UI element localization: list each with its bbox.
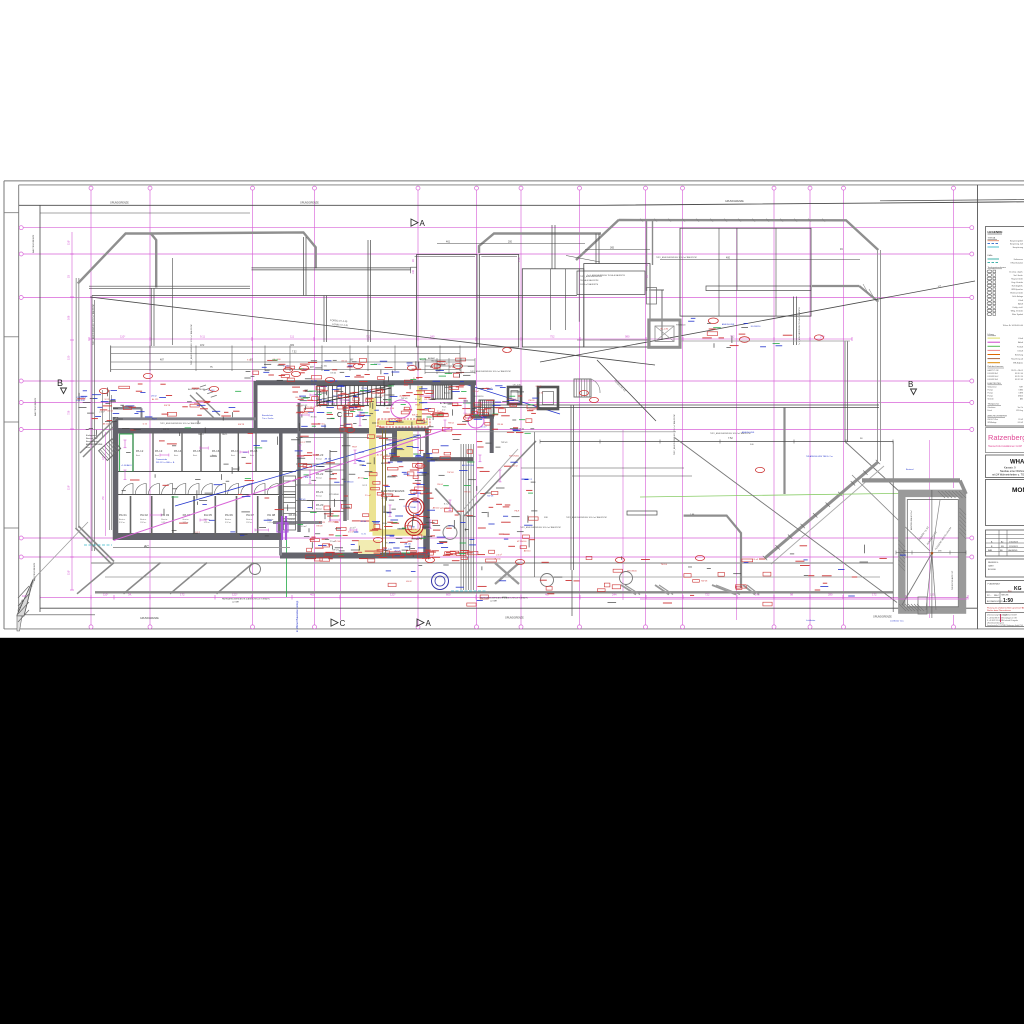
svg-text:Zuluft: Zuluft — [1018, 337, 1023, 340]
svg-text:KW 28: KW 28 — [528, 400, 535, 402]
svg-text:2.5 m²: 2.5 m² — [365, 494, 371, 497]
svg-text:PA 18: PA 18 — [250, 449, 258, 453]
svg-text:Einst.: Einst. — [231, 454, 236, 457]
svg-text:X82: X82 — [290, 345, 295, 347]
svg-text:119°: 119° — [67, 485, 71, 490]
svg-text:BAN: BAN — [988, 549, 993, 552]
svg-text:Einst.: Einst. — [174, 454, 179, 457]
svg-text:Einst.: Einst. — [136, 454, 141, 457]
svg-text:Einst.pl.: Einst.pl. — [316, 458, 323, 461]
svg-text:Grundlagen d. OIB: Grundlagen d. OIB — [1003, 616, 1018, 619]
svg-text:PLANINHALT: PLANINHALT — [988, 582, 1001, 585]
svg-text:Anspeiseg. kalt: Anspeiseg. kalt — [1010, 243, 1023, 246]
svg-text:166: 166 — [67, 315, 71, 320]
svg-text:HT DN100: HT DN100 — [440, 508, 450, 510]
svg-text:GRUNDGRENZE: GRUNDGRENZE — [300, 202, 319, 205]
svg-text:PC…: PC… — [987, 595, 992, 597]
svg-text:B: B — [57, 378, 63, 388]
svg-text:110°: 110° — [120, 335, 125, 339]
svg-text:Pumpe: Pumpe — [988, 390, 993, 392]
svg-text:KW7: KW7 — [1019, 387, 1023, 389]
svg-text:MONTA: MONTA — [1012, 487, 1024, 494]
svg-text:OK -2.80: OK -2.80 — [384, 549, 393, 551]
svg-text:9.11: 9.11 — [200, 335, 206, 339]
svg-text:110°: 110° — [22, 595, 27, 598]
svg-text:3.52 m²: 3.52 m² — [225, 521, 231, 524]
svg-text:ANSCHLUSS: ANSCHLUSS — [742, 431, 755, 434]
svg-text:FAHRBAHNOBERKANTE (DARIOOVELLE: FAHRBAHNOBERKANTE (DARIOOVELLE STRATH) — [480, 597, 528, 600]
svg-text:116°: 116° — [67, 240, 71, 245]
svg-text:KG: KG — [1014, 586, 1022, 592]
svg-text:Kansstr. 9: Kansstr. 9 — [1004, 466, 1016, 470]
svg-text:12/9/2021: 12/9/2021 — [1009, 546, 1019, 548]
svg-text:PA 07: PA 07 — [246, 513, 254, 517]
svg-text:Elektroverteiler: Elektroverteiler — [1010, 292, 1023, 295]
svg-text:N. behördl. Freigabe: N. behördl. Freigabe — [1003, 619, 1018, 622]
svg-text:103.4 m² BAUFNTM: 103.4 m² BAUFNTM — [580, 283, 598, 286]
svg-text:ZL 160: ZL 160 — [335, 541, 342, 543]
svg-text:AL 125: AL 125 — [152, 398, 159, 401]
svg-text:WHA L: WHA L — [1010, 460, 1024, 466]
svg-text:PA 02: PA 02 — [140, 513, 148, 517]
svg-text:AB 110: AB 110 — [405, 543, 412, 546]
svg-text:OK -2.80: OK -2.80 — [440, 364, 449, 366]
svg-text:PA 21: PA 21 — [316, 490, 324, 494]
svg-text:Kaltwasser: Kaltwasser — [1014, 258, 1024, 261]
svg-text:Einlagerung: Einlagerung — [86, 434, 98, 437]
svg-text:HT DN100: HT DN100 — [627, 571, 637, 573]
svg-text:PA 08: PA 08 — [267, 513, 275, 517]
svg-text:E-TECHNIK: E-TECHNIK — [440, 402, 453, 405]
svg-text:2.5 m²: 2.5 m² — [330, 540, 336, 543]
svg-text:ANSCHLUSSWERTE: ANSCHLUSSWERTE — [988, 415, 1008, 418]
svg-text:HT DN100: HT DN100 — [507, 399, 517, 401]
svg-text:Schl.-Anlage: Schl.-Anlage — [1012, 295, 1023, 298]
svg-text:FB-H: FB-H — [415, 405, 420, 407]
svg-text:Anspeisegebiet: Anspeisegebiet — [1010, 240, 1023, 243]
svg-text:2.5 m²: 2.5 m² — [415, 398, 421, 401]
svg-text:Abluft: Abluft — [1018, 341, 1023, 344]
svg-text:Einst.: Einst. — [155, 454, 160, 457]
svg-text:AUSSENSTIEGE: AUSSENSTIEGE — [188, 388, 206, 391]
svg-text:8.5 kW: 8.5 kW — [1018, 422, 1024, 424]
svg-text:UG 02: UG 02 — [512, 466, 519, 468]
svg-text:KW 28: KW 28 — [388, 405, 395, 407]
svg-text:TW F_ANSCHERMUNG 103.4 m² BAUF: TW F_ANSCHERMUNG 103.4 m² BAUFNTM — [566, 516, 607, 519]
svg-text:OK -2.80: OK -2.80 — [660, 329, 669, 331]
svg-text:Drucksp. abgeh.: Drucksp. abgeh. — [1009, 270, 1023, 273]
svg-text:TW-AB: TW-AB — [410, 506, 417, 509]
svg-text:ZL 160: ZL 160 — [361, 388, 368, 390]
svg-text:2.5 m²: 2.5 m² — [496, 554, 502, 557]
svg-text:WW-Speicher: WW-Speicher — [1011, 288, 1023, 291]
svg-text:135: 135 — [930, 593, 935, 597]
svg-text:UG 02: UG 02 — [341, 360, 348, 362]
svg-text:Umluft: Umluft — [1018, 349, 1024, 352]
svg-text:TW F_ANSCHERMUNG 103.4 m² BAUF: TW F_ANSCHERMUNG 103.4 m² BAUFNTM — [520, 526, 561, 529]
svg-text:Einst.pl.: Einst.pl. — [316, 495, 323, 498]
svg-text:111: 111 — [290, 335, 295, 339]
svg-text:TW-ANSCHLUSS TIEFG. 2 m: TW-ANSCHLUSS TIEFG. 2 m — [806, 455, 833, 458]
svg-text:A80: A80 — [1020, 398, 1023, 401]
svg-text:756: 756 — [67, 410, 71, 415]
svg-text:Hauptverteiler: Hauptverteiler — [1011, 277, 1023, 280]
svg-text:Filter Symbol: Filter Symbol — [1012, 313, 1024, 316]
svg-text:+1.80 ADO: +1.80 ADO — [121, 464, 132, 467]
svg-text:Hauptstrang: Hauptstrang — [1013, 246, 1023, 249]
svg-text:PA 20: PA 20 — [316, 503, 324, 507]
svg-text:AB 110: AB 110 — [319, 398, 326, 401]
svg-text:RS 64: RS 64 — [311, 416, 317, 418]
svg-text:zu KME: zu KME — [232, 602, 240, 604]
svg-text:TW 5/4: TW 5/4 — [508, 405, 515, 407]
svg-text:Rauchfang ab: Rauchfang ab — [1011, 359, 1023, 361]
svg-text:980: 980 — [625, 335, 630, 339]
svg-text:Tn 5_ANSCHERMUNG TECkA E BAUFN: Tn 5_ANSCHERMUNG TECkA E BAUFNTM — [798, 307, 801, 345]
svg-text:B: B — [908, 380, 913, 389]
svg-text:W-lass Nr. 34-38-66-0-40: W-lass Nr. 34-38-66-0-40 — [1003, 325, 1023, 327]
svg-text:PA 13: PA 13 — [155, 449, 163, 453]
svg-text:zu KME: zu KME — [490, 601, 498, 603]
svg-text:102: 102 — [412, 269, 415, 274]
svg-text:Zirkulation: Zirkulation — [988, 406, 996, 409]
svg-text:365: 365 — [610, 246, 615, 249]
svg-text:2.5 m²: 2.5 m² — [752, 558, 758, 561]
svg-text:Liftung: Liftung — [988, 333, 995, 336]
svg-text:DN 32 / 63: DN 32 / 63 — [1015, 379, 1023, 381]
svg-text:Einst.w.: Einst.w. — [161, 518, 168, 521]
svg-text:2.5 m²: 2.5 m² — [301, 525, 307, 528]
svg-text:Vorl. Heizk.: Vorl. Heizk. — [1013, 274, 1023, 277]
svg-text:FB-H: FB-H — [425, 488, 430, 490]
svg-text:Kühlg. rückl.: Kühlg. rückl. — [1013, 306, 1024, 309]
svg-text:Einst.w.: Einst.w. — [183, 518, 190, 521]
svg-text:-2.88 KELL: -2.88 KELL — [76, 397, 87, 399]
svg-text:UG 02: UG 02 — [406, 581, 413, 583]
svg-text:Whlg. Verteiler: Whlg. Verteiler — [1011, 310, 1024, 313]
svg-text:150: 150 — [67, 355, 71, 360]
svg-text:AL 125: AL 125 — [400, 394, 407, 397]
svg-text:752: 752 — [730, 335, 735, 339]
svg-text:FB-H: FB-H — [152, 419, 157, 421]
svg-text:TECkA E BAUFNTM: TECkA E BAUFNTM — [580, 279, 599, 282]
svg-text:Vollautomat: Vollautomat — [988, 386, 997, 389]
svg-text:3.52 m²: 3.52 m² — [140, 521, 146, 524]
svg-text:TW 5/4: TW 5/4 — [464, 492, 471, 494]
svg-text:in offener Bauweise verlegt: in offener Bauweise verlegt — [295, 600, 299, 632]
svg-text:461: 461 — [446, 241, 451, 244]
svg-text:Abluft: Abluft — [1018, 302, 1023, 305]
svg-text:Einst.pl.: Einst.pl. — [316, 477, 323, 480]
svg-text:KG DN150: KG DN150 — [474, 396, 485, 398]
svg-text:AL 125: AL 125 — [444, 392, 451, 395]
svg-text:ATELIER BÜHNE: ATELIER BÜHNE — [86, 443, 103, 446]
svg-text:Tür u. Decke: Tür u. Decke — [262, 418, 274, 420]
svg-text:TW 5/4: TW 5/4 — [299, 499, 306, 501]
svg-text:Rohrbegleith.: Rohrbegleith. — [1012, 285, 1024, 288]
svg-text:PA 12: PA 12 — [136, 449, 144, 453]
svg-text:K-B EFF 86r2: K-B EFF 86r2 — [988, 372, 998, 375]
svg-text:TW 5/4: TW 5/4 — [401, 398, 408, 400]
svg-text:Einst.: Einst. — [212, 454, 217, 457]
svg-text:7 m²: 7 m² — [442, 409, 446, 412]
svg-text:2.5 m²: 2.5 m² — [481, 425, 487, 428]
svg-text:mit 24 Wohneinheiten u. TG: mit 24 Wohneinheiten u. TG — [992, 473, 1024, 477]
svg-text:7.52: 7.52 — [292, 352, 297, 354]
svg-text:DN80: DN80 — [1019, 390, 1023, 392]
svg-text:AC: AC — [144, 545, 149, 549]
svg-text:UG 02: UG 02 — [330, 372, 337, 374]
svg-text:ANSCHLUSS: ANSCHLUSS — [722, 323, 735, 326]
svg-text:KG DN150: KG DN150 — [388, 476, 399, 478]
svg-text:TW 5/4: TW 5/4 — [332, 550, 339, 552]
svg-text:BAUTEILGRENZE: BAUTEILGRENZE — [32, 234, 35, 253]
svg-text:FB-H: FB-H — [515, 511, 520, 513]
svg-text:2.5 m²: 2.5 m² — [473, 390, 479, 393]
svg-text:Neubau einer Wohnanlage: Neubau einer Wohnanlage — [1000, 469, 1024, 473]
svg-text:TW F_ANSCHERMUNG 103.4 m² BAUF: TW F_ANSCHERMUNG 103.4 m² BAUFNTM — [656, 256, 697, 259]
svg-text:Einst.w.: Einst.w. — [246, 518, 253, 521]
svg-text:DN 20 / 40: DN 20 / 40 — [1015, 373, 1023, 375]
svg-text:Planung ist urheberrechtlich g: Planung ist urheberrechtlich geschützt! … — [987, 606, 1024, 609]
svg-text:Einst.w.: Einst.w. — [140, 518, 147, 521]
svg-text:AL 125: AL 125 — [319, 521, 326, 524]
svg-text:Bestand: Bestand — [906, 468, 913, 471]
svg-text:Tauglichkeit GmbH: Tauglichkeit GmbH — [1003, 614, 1018, 617]
svg-text:AB 110: AB 110 — [325, 458, 332, 461]
svg-text:GRUNDGRENZE: GRUNDGRENZE — [725, 200, 744, 203]
svg-text:DN98: DN98 — [1019, 393, 1023, 395]
svg-text:LAUFEND: LAUFEND — [1008, 549, 1018, 552]
svg-text:KW 28: KW 28 — [412, 415, 419, 417]
svg-text:KW-Zirkulation: KW-Zirkulation — [1011, 262, 1023, 265]
svg-text:Pumpe: Pumpe — [988, 396, 993, 398]
svg-text:RS 64: RS 64 — [448, 423, 454, 425]
svg-text:AL 125: AL 125 — [377, 454, 384, 457]
svg-text:KW 28: KW 28 — [487, 496, 494, 498]
svg-text:Einst.w.: Einst.w. — [119, 518, 126, 521]
svg-text:KW 28: KW 28 — [164, 405, 171, 407]
svg-text:Rechte beim Planverfasser: Rechte beim Planverfasser — [987, 609, 1011, 612]
svg-text:UG 02: UG 02 — [302, 405, 309, 407]
svg-text:OK -2.80: OK -2.80 — [513, 385, 522, 387]
svg-text:TW 5/4: TW 5/4 — [661, 564, 668, 566]
svg-text:2.5 m²: 2.5 m² — [417, 537, 423, 540]
svg-text:200: 200 — [508, 241, 513, 244]
svg-text:3.52 m²: 3.52 m² — [204, 521, 210, 524]
svg-text:Bereich 2 m³: Bereich 2 m³ — [86, 437, 98, 440]
svg-text:K-B EFF 98r3: K-B EFF 98r3 — [988, 378, 998, 381]
svg-text:AB 110: AB 110 — [103, 423, 110, 426]
svg-text:HT DN100: HT DN100 — [329, 494, 339, 496]
svg-text:HT DN100: HT DN100 — [344, 482, 354, 484]
svg-text:A: A — [420, 219, 426, 228]
svg-text:KW 28: KW 28 — [701, 581, 708, 583]
svg-text:AB 110: AB 110 — [433, 506, 440, 509]
svg-text:Haustechnik-Installationen Gmb: Haustechnik-Installationen GmbH — [988, 445, 1023, 448]
svg-text:2.5 m²: 2.5 m² — [350, 527, 356, 530]
svg-text:10'2: 10'2 — [200, 345, 205, 347]
svg-text:KW 28: KW 28 — [305, 477, 312, 479]
svg-text:FB-H: FB-H — [382, 523, 387, 525]
svg-text:XX: XX — [688, 565, 692, 569]
svg-text:OK -2.80: OK -2.80 — [386, 408, 395, 410]
svg-text:max.: max. — [86, 447, 91, 449]
svg-text:BAUTEILGRENZE: BAUTEILGRENZE — [34, 397, 37, 416]
svg-text:TW 5/4: TW 5/4 — [501, 442, 508, 444]
svg-text:GAST/: GAST/ — [988, 565, 994, 568]
svg-text:Tn F_ANSCHERMUNG TECkA E BAUFN: Tn F_ANSCHERMUNG TECkA E BAUFNTM — [587, 274, 625, 277]
svg-text:OK -2.80: OK -2.80 — [380, 402, 389, 404]
svg-text:Trennwände: Trennwände — [156, 459, 168, 461]
svg-text:WW-Anlage: WW-Anlage — [988, 421, 997, 424]
svg-text:Hzg.-Verteiler: Hzg.-Verteiler — [1012, 281, 1024, 284]
svg-text:2.5 m²: 2.5 m² — [404, 505, 410, 508]
svg-text:Belüftung: Belüftung — [1015, 354, 1023, 357]
svg-text:KW 28: KW 28 — [238, 424, 245, 426]
svg-text:DA 05: DA 05 — [204, 513, 213, 517]
svg-text:RB-C: RB-C — [994, 595, 999, 597]
svg-text:400: 400 — [726, 256, 731, 259]
svg-text:1/10/2023: 1/10/2023 — [1009, 542, 1019, 544]
svg-text:ZL 160: ZL 160 — [321, 365, 328, 367]
svg-text:ZL 160: ZL 160 — [494, 558, 501, 560]
svg-text:PA 10: PA 10 — [198, 433, 204, 436]
svg-text:KG DN150: KG DN150 — [751, 326, 762, 328]
svg-text:DN110: DN110 — [1018, 396, 1023, 398]
svg-text:FB-H: FB-H — [359, 452, 364, 454]
svg-text:PA 03: PA 03 — [161, 513, 169, 517]
svg-text:Brandschutz: Brandschutz — [262, 414, 273, 417]
svg-text:AB 110: AB 110 — [422, 552, 429, 555]
svg-text:MST-RB: MST-RB — [1002, 595, 1010, 597]
svg-text:HAUPTLT. KW: HAUPTLT. KW — [988, 369, 999, 372]
svg-text:KG DN150: KG DN150 — [407, 529, 418, 531]
svg-text:TW F_ANSCHERMUNG 103.4 m² BAUF: TW F_ANSCHERMUNG 103.4 m² BAUFNTM — [190, 324, 193, 365]
svg-text:Brandabschn.: Brandabschn. — [86, 440, 99, 443]
svg-text:Ratzenberger: Ratzenberger — [988, 433, 1024, 442]
svg-text:ZL 160: ZL 160 — [283, 365, 290, 367]
svg-text:RS 64: RS 64 — [361, 521, 367, 523]
svg-text:PA 14: PA 14 — [174, 449, 182, 453]
svg-text:12 kW: 12 kW — [1018, 419, 1023, 421]
svg-text:C: C — [340, 619, 346, 628]
svg-text:HT DN100: HT DN100 — [517, 541, 527, 543]
svg-text:TW F_ANSCHERMUNG 103.4 m² BAUF: TW F_ANSCHERMUNG 103.4 m² BAUFNTM — [160, 422, 201, 425]
svg-text:TW F_ANSCHERMUNG 103.4 m² BAUF: TW F_ANSCHERMUNG 103.4 m² BAUFNTM — [92, 304, 95, 345]
svg-text:88°: 88° — [350, 360, 354, 362]
svg-text:Lichtleiter: Lichtleiter — [806, 619, 816, 622]
svg-text:AL 125: AL 125 — [417, 471, 424, 474]
svg-text:3.52 m²: 3.52 m² — [267, 521, 273, 524]
svg-text:3.52 m²: 3.52 m² — [289, 521, 295, 524]
svg-text:Pumpe: Pumpe — [988, 393, 993, 395]
svg-text:KW 28: KW 28 — [315, 406, 322, 408]
svg-text:Einst.pl.: Einst.pl. — [316, 508, 323, 511]
svg-text:1:50: 1:50 — [1003, 598, 1013, 604]
svg-text:K-B EFF Rck2: K-B EFF Rck2 — [988, 376, 999, 378]
svg-text:PA 11: PA 11 — [222, 433, 228, 436]
svg-text:02/01/2023: 02/01/2023 — [993, 601, 1002, 603]
svg-text:DN 25 = 28x1.5: DN 25 = 28x1.5 — [1011, 370, 1023, 372]
svg-text:UG 02: UG 02 — [151, 395, 158, 397]
svg-text:FB-H: FB-H — [352, 447, 357, 449]
svg-text:Lichtleiter neu: Lichtleiter neu — [890, 620, 904, 623]
svg-text:2.5 m²: 2.5 m² — [99, 411, 105, 414]
svg-text:3.52 m²: 3.52 m² — [246, 521, 252, 524]
svg-text:AB-LEITUNG: AB-LEITUNG — [462, 464, 474, 467]
svg-text:A: A — [426, 619, 432, 628]
svg-text:Planl.: Planl. — [442, 407, 447, 409]
svg-text:KW 28: KW 28 — [316, 526, 323, 528]
svg-text:AB 110: AB 110 — [318, 423, 325, 426]
svg-text:116°: 116° — [67, 570, 71, 575]
svg-text:PA 01: PA 01 — [119, 513, 127, 517]
svg-text:AB 110: AB 110 — [524, 550, 531, 553]
svg-text:PA 06: PA 06 — [225, 513, 233, 517]
svg-text:KG DN150: KG DN150 — [509, 455, 520, 457]
svg-text:PA 17: PA 17 — [231, 449, 239, 453]
svg-text:2.5 m²: 2.5 m² — [296, 412, 302, 415]
svg-text:PA 15: PA 15 — [193, 449, 201, 453]
svg-text:C: C — [337, 412, 342, 419]
svg-text:Frisch: Frisch — [988, 409, 993, 412]
svg-text:ABSTELLN: ABSTELLN — [122, 405, 134, 408]
svg-text:WD 11.5 o. BEL n. B.: WD 11.5 o. BEL n. B. — [156, 462, 175, 464]
svg-text:TW-RÜCKHALTE 34²: TW-RÜCKHALTE 34² — [951, 571, 954, 590]
svg-text:KdBe: KdBe — [988, 255, 994, 257]
svg-text:DN 25 / 50: DN 25 / 50 — [1015, 376, 1023, 378]
svg-text:Vor Ort: Vor Ort — [1018, 406, 1024, 409]
svg-text:7.52: 7.52 — [728, 437, 733, 440]
svg-text:Einst.: Einst. — [250, 454, 255, 457]
svg-text:FAHRBAHNOBERKANTE (DARIOOVELLE: FAHRBAHNOBERKANTE (DARIOOVELLE STRATH) — [222, 598, 270, 601]
svg-text:WE Aufputz: WE Aufputz — [1013, 362, 1023, 365]
svg-text:Fortluft: Fortluft — [1017, 345, 1023, 348]
svg-text:1.32: 1.32 — [518, 257, 521, 262]
svg-text:TITRGA: TITRGA — [988, 237, 996, 240]
svg-text:FFB -2.80: FFB -2.80 — [76, 400, 86, 402]
svg-text:Einst.w.: Einst.w. — [225, 518, 232, 521]
svg-text:TW F_ANSCHERMUNG 103.4 m² BAUF: TW F_ANSCHERMUNG 103.4 m² BAUFNTM — [470, 370, 511, 373]
svg-text:UG 02: UG 02 — [107, 410, 114, 412]
svg-text:Verteiler: Verteiler — [988, 398, 995, 401]
svg-text:2.5 m²: 2.5 m² — [536, 385, 542, 388]
svg-text:W2-Omg: W2-Omg — [1016, 410, 1023, 412]
svg-text:LEGENDE: LEGENDE — [988, 230, 1003, 234]
svg-text:ZL 160: ZL 160 — [311, 381, 318, 383]
svg-text:AB ABC: AB ABC — [428, 357, 436, 360]
svg-text:GRUNDGRENZE: GRUNDGRENZE — [110, 202, 129, 205]
svg-text:GRUNDGRENZE: GRUNDGRENZE — [873, 616, 892, 619]
svg-text:TW 5/4: TW 5/4 — [447, 472, 454, 474]
svg-text:752: 752 — [550, 335, 555, 339]
svg-text:2.5 m²: 2.5 m² — [348, 530, 354, 533]
svg-text:HT DN100: HT DN100 — [676, 325, 686, 327]
svg-text:Zuluft: Zuluft — [1018, 299, 1023, 302]
svg-text:ABSTELLRAUM 23m²: ABSTELLRAUM 23m² — [910, 510, 913, 530]
svg-text:BO-BGE: BO-BGE — [988, 569, 996, 571]
svg-text:KW 28: KW 28 — [163, 429, 170, 431]
svg-text:Einst.: Einst. — [193, 454, 198, 457]
svg-text:3.52 m²: 3.52 m² — [119, 521, 125, 524]
svg-text:RS 64: RS 64 — [498, 424, 504, 426]
svg-text:PA 16: PA 16 — [212, 449, 220, 453]
svg-text:RS 64: RS 64 — [437, 484, 443, 486]
svg-text:Tank-geräuscharme: Tank-geräuscharme — [988, 266, 1007, 269]
svg-text:GRUNDGRENZE: GRUNDGRENZE — [505, 617, 524, 620]
svg-text:ELEKTROTECHNIK: ELEKTROTECHNIK — [381, 489, 405, 493]
